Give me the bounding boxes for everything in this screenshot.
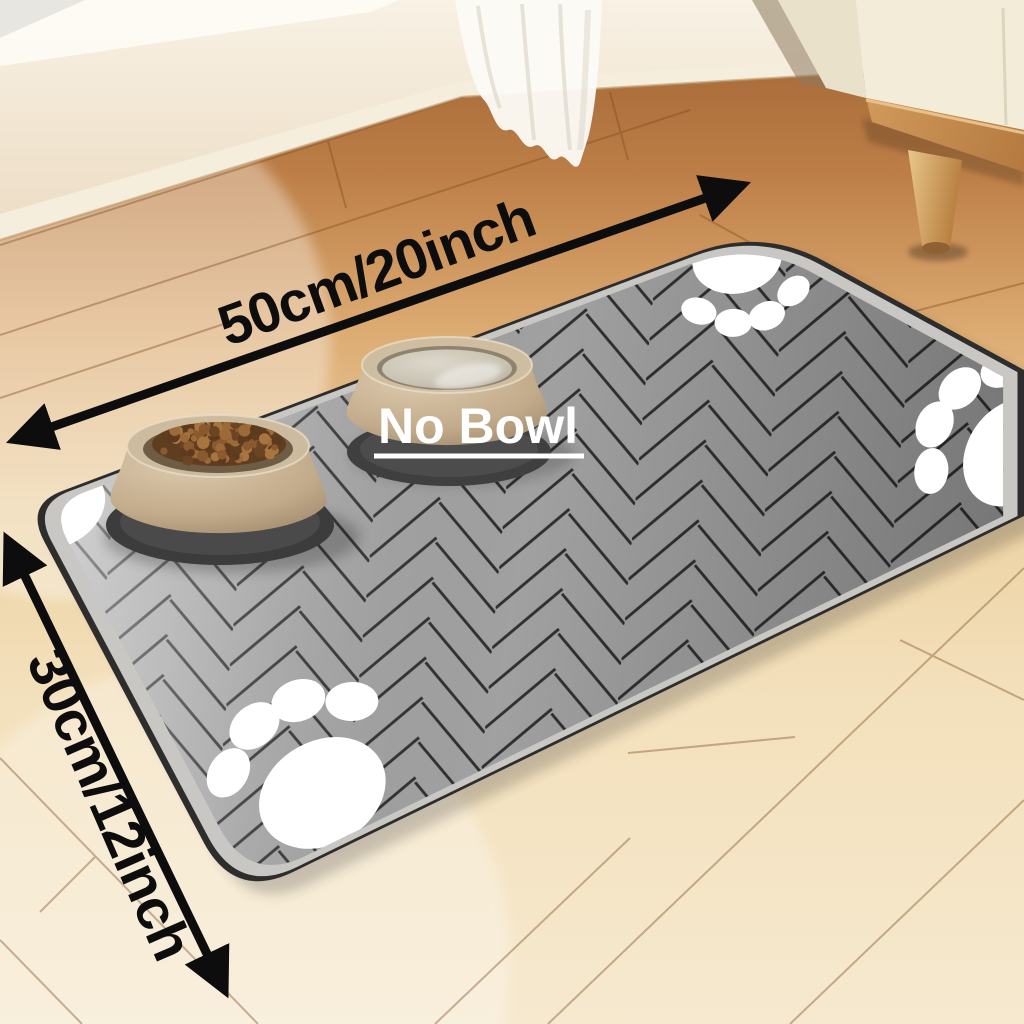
scene-canvas: 50cm/20inch 30cm/12inch No Bowl <box>0 0 1024 1024</box>
product-image: 50cm/20inch 30cm/12inch No Bowl <box>0 0 1024 1024</box>
cabinet-leg-foot <box>922 242 950 254</box>
no-bowl-label: No Bowl <box>378 398 578 454</box>
